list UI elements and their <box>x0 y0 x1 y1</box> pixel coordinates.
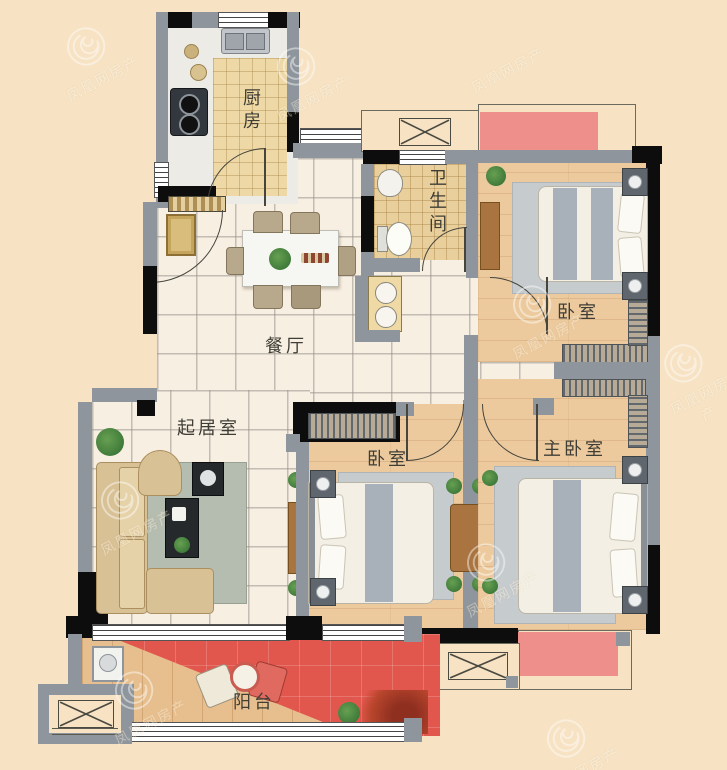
room-label-bedroom-top: 卧室 <box>557 298 599 324</box>
wall-segment <box>363 150 399 164</box>
room-label-bedroom-mid: 卧室 <box>367 445 409 471</box>
room-label-master: 主卧室 <box>543 435 606 461</box>
floor-plan: 卫生间 卧室 餐厅 <box>0 0 727 770</box>
kitchen-window <box>218 12 270 28</box>
kitchen-sink <box>221 28 270 54</box>
wall-segment <box>616 632 630 646</box>
balcony-railing <box>130 722 410 742</box>
ac-platform-lines <box>52 728 118 735</box>
wardrobe <box>308 413 396 439</box>
sofa-chaise <box>146 568 214 614</box>
bathroom-window <box>399 150 447 165</box>
room-label-kitchen: 厨房 <box>238 88 264 134</box>
wall-segment <box>361 252 374 276</box>
wall-segment <box>554 362 650 379</box>
bedroom-top-bed <box>538 186 648 282</box>
bay-window-red <box>480 112 598 150</box>
plant <box>96 428 124 456</box>
plant <box>446 478 462 494</box>
wall-segment <box>404 616 422 642</box>
wall-segment <box>632 146 662 164</box>
wall-segment <box>293 143 367 158</box>
wall-segment <box>192 12 218 28</box>
plant <box>486 166 506 186</box>
room-label-living: 起居室 <box>177 414 240 440</box>
wall-segment <box>143 266 157 334</box>
wall-segment <box>143 202 157 266</box>
watermark: 凤凰网房产 <box>468 42 548 97</box>
wall-segment <box>404 718 422 742</box>
wall-segment <box>137 400 155 416</box>
ac-symbol <box>448 652 508 680</box>
kitchen-door-leaf <box>264 148 266 206</box>
dish <box>190 64 207 81</box>
ac-symbol <box>399 118 451 146</box>
side-table <box>192 462 224 496</box>
washing-machine <box>92 646 124 682</box>
wall-segment <box>286 434 300 452</box>
bathroom-sink <box>377 169 403 197</box>
ac-symbol <box>58 700 114 728</box>
wall-segment <box>287 12 299 112</box>
wardrobe <box>562 344 648 364</box>
dining-chair <box>338 246 356 276</box>
toilet <box>377 222 411 254</box>
tv-cabinet <box>480 202 500 270</box>
wall-segment <box>374 258 420 272</box>
wall-segment <box>361 196 374 252</box>
bay-window-red <box>518 632 618 676</box>
wall-segment <box>355 330 400 342</box>
armchair <box>138 450 182 496</box>
room-label-dining: 餐厅 <box>265 332 307 358</box>
nightstand <box>622 586 648 614</box>
vanity-counter <box>368 276 402 332</box>
dining-chair <box>226 247 244 275</box>
wardrobe <box>628 300 648 346</box>
wardrobe <box>628 395 648 448</box>
dish <box>184 44 199 59</box>
bathroom-door-leaf <box>464 227 466 272</box>
nightstand <box>622 272 648 300</box>
watermark: 凤凰网房产 <box>521 701 623 770</box>
dining-chair <box>290 212 320 234</box>
wall-segment <box>506 676 518 688</box>
nightstand <box>310 578 336 606</box>
coffee-table <box>165 498 199 558</box>
plant <box>338 702 360 724</box>
wall-segment <box>646 545 660 634</box>
plant <box>482 470 498 486</box>
watermark: 凤凰网房产 <box>41 9 143 106</box>
master-door-leaf <box>536 404 538 461</box>
room-label-balcony: 阳台 <box>233 688 275 714</box>
wall-segment <box>286 616 322 640</box>
sliding-door-bedroom <box>322 624 406 641</box>
wall-segment <box>361 164 374 196</box>
plant <box>482 578 498 594</box>
dining-table <box>242 230 339 287</box>
nightstand <box>622 168 648 196</box>
wall-segment <box>466 150 478 278</box>
room-label-bathroom: 卫生间 <box>424 168 450 237</box>
dining-chair <box>253 211 283 233</box>
dining-chair <box>291 285 321 309</box>
sliding-door-living <box>92 624 290 641</box>
bedroom-top-door-leaf <box>546 277 548 334</box>
dining-chair <box>253 285 283 309</box>
nightstand <box>310 470 336 498</box>
wall-segment <box>478 150 632 163</box>
entry-rug <box>166 214 196 256</box>
nightstand <box>622 456 648 484</box>
wall-segment <box>464 335 478 404</box>
wall-segment <box>646 164 660 336</box>
plant <box>446 576 462 592</box>
stove <box>170 88 208 136</box>
